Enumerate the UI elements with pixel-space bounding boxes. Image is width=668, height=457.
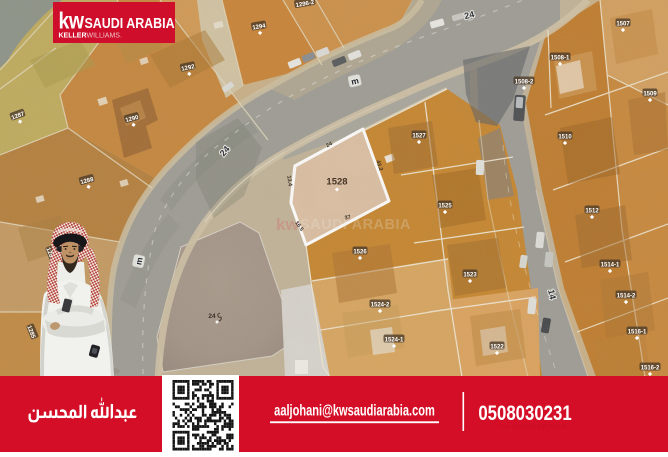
svg-text:1514-1: 1514-1 [601, 263, 620, 269]
svg-text:1507: 1507 [616, 22, 630, 28]
svg-text:kw: kw [59, 7, 85, 34]
svg-text:1508-2: 1508-2 [515, 80, 534, 86]
svg-text:14: 14 [546, 288, 558, 300]
svg-text:1522: 1522 [490, 345, 504, 351]
svg-text:SAUDI ARABIA: SAUDI ARABIA [85, 14, 175, 31]
svg-text:1523: 1523 [463, 273, 477, 279]
svg-text:1524-1: 1524-1 [385, 338, 404, 344]
svg-text:1510: 1510 [558, 135, 572, 141]
svg-text:0508030231: 0508030231 [478, 402, 572, 425]
svg-text:1525: 1525 [438, 204, 452, 210]
svg-text:1527: 1527 [412, 134, 426, 140]
svg-text:KELLERWILLIAMS.: KELLERWILLIAMS. [59, 33, 122, 40]
svg-text:1516-1: 1516-1 [628, 330, 647, 336]
svg-text:1516-2: 1516-2 [641, 366, 660, 372]
svg-text:1512: 1512 [585, 209, 599, 215]
svg-text:1524-2: 1524-2 [371, 303, 390, 309]
svg-text:1526: 1526 [353, 250, 367, 256]
svg-text:1508-1: 1508-1 [551, 56, 570, 62]
svg-text:24: 24 [208, 313, 216, 320]
svg-text:1509: 1509 [643, 92, 657, 98]
svg-text:37: 37 [344, 214, 351, 221]
svg-text:1528: 1528 [326, 177, 347, 188]
svg-text:aaljohani@kwsaudiarabia.com: aaljohani@kwsaudiarabia.com [274, 402, 435, 419]
svg-text:1514-2: 1514-2 [617, 294, 636, 300]
